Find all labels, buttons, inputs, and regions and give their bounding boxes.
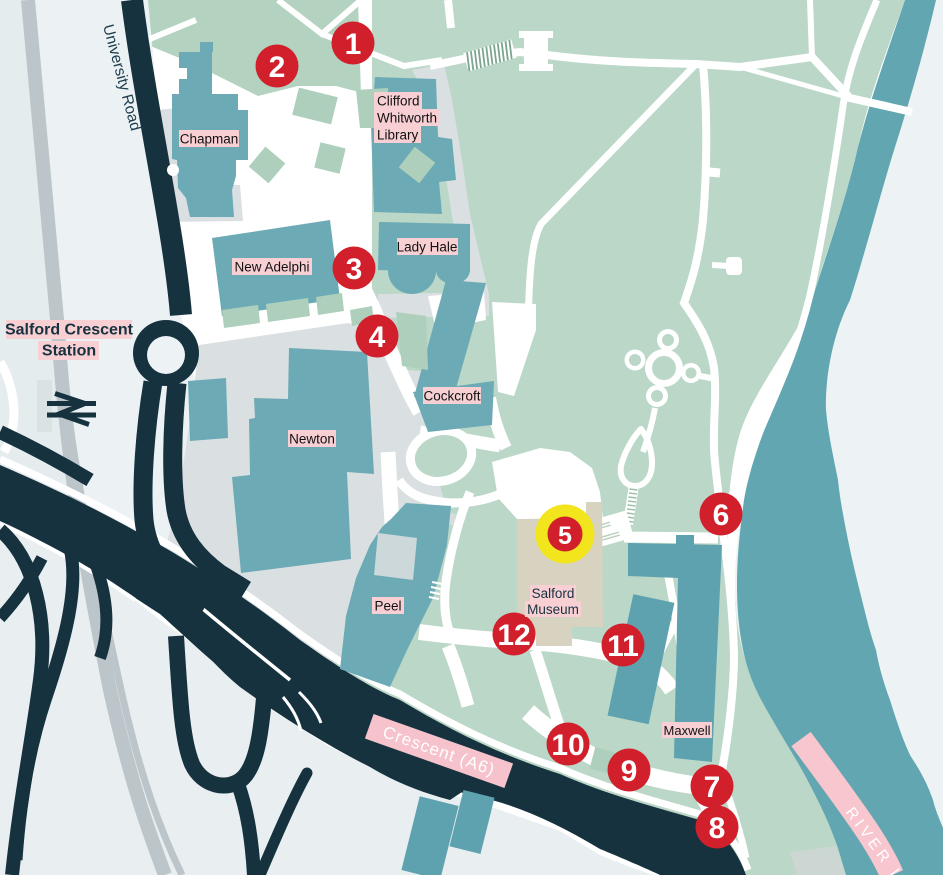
svg-text:Newton: Newton [289, 432, 335, 447]
svg-text:3: 3 [346, 253, 363, 286]
svg-text:1: 1 [345, 28, 362, 61]
svg-text:2: 2 [269, 51, 286, 84]
svg-text:Salford Crescent: Salford Crescent [5, 322, 134, 339]
svg-text:7: 7 [704, 771, 721, 804]
svg-text:Clifford: Clifford [377, 94, 420, 109]
svg-text:11: 11 [607, 630, 639, 663]
svg-text:8: 8 [709, 812, 726, 845]
svg-text:Salford: Salford [532, 586, 575, 601]
svg-text:10: 10 [551, 729, 584, 762]
svg-text:9: 9 [621, 755, 638, 788]
svg-text:Maxwell: Maxwell [664, 723, 711, 738]
svg-text:6: 6 [713, 499, 730, 532]
svg-text:Lady Hale: Lady Hale [397, 240, 458, 255]
svg-text:Whitworth: Whitworth [377, 111, 437, 126]
svg-text:New Adelphi: New Adelphi [234, 260, 309, 275]
svg-text:5: 5 [558, 522, 572, 550]
svg-text:4: 4 [369, 321, 386, 354]
svg-text:Cockcroft: Cockcroft [423, 389, 480, 404]
svg-text:Peel: Peel [374, 599, 401, 614]
svg-text:Library: Library [377, 128, 419, 143]
svg-text:Museum: Museum [527, 602, 579, 617]
svg-text:12: 12 [497, 619, 530, 652]
svg-text:Station: Station [42, 343, 96, 360]
svg-text:Chapman: Chapman [180, 132, 239, 147]
